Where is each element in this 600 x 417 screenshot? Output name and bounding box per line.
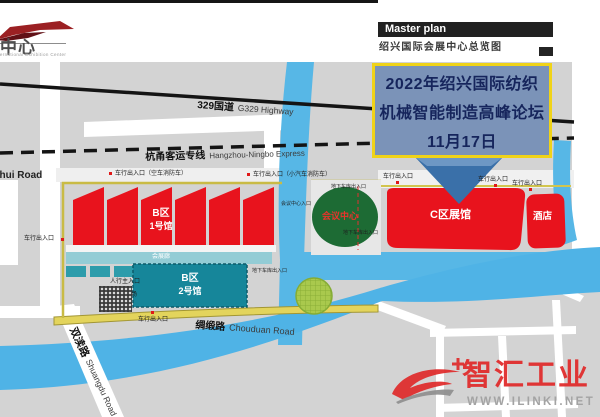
entrance-label: 地下车库出入口	[252, 269, 287, 275]
entrance-label: 车行出入口（空车消防车）	[115, 171, 187, 178]
master-plan-title: Master plan	[378, 22, 553, 37]
entrance-label: 车行出入口	[24, 236, 54, 243]
g329-en: G329 Highway	[238, 103, 294, 117]
entrance-label: 车行出入口	[512, 181, 542, 188]
hall-b1-line1: B区	[138, 207, 184, 220]
entrance-label: 地下车库出入口	[331, 185, 366, 191]
event-annotation-box: 2022年绍兴国际纺织 机械智能制造高峰论坛 11月17日	[372, 63, 552, 158]
hall-b1-label: B区 1号馆	[138, 207, 184, 233]
chouduan-en: Chouduan Road	[229, 322, 295, 337]
entrance-label: 车行出入口	[478, 177, 508, 184]
tuhui-road-label: Tuhui Road	[0, 170, 42, 181]
entrance-label: 人行主入口	[110, 279, 140, 286]
hall-b2-label: B区 2号馆	[167, 272, 213, 298]
logo-text-en: Shaoxing International Exhibition Center	[0, 52, 66, 57]
entrance-label: 车行出入口	[383, 174, 413, 181]
entrance-label: 车行出入口	[138, 317, 168, 324]
hotel-label: 酒店	[533, 212, 552, 222]
crop-mark	[539, 47, 553, 56]
corridor-label: 会展廊	[152, 254, 170, 261]
hall-b2-line1: B区	[167, 272, 213, 285]
watermark-logo-icon	[382, 352, 472, 410]
watermark-site: WWW.ILINKI.NET	[467, 396, 595, 408]
map-subtitle: 绍兴国际会展中心总览图	[379, 38, 502, 53]
entrance-label: 车行出入口（小汽车消防车）	[253, 172, 331, 179]
plaza-building-block	[99, 286, 132, 312]
conference-center-label: 会议中心	[322, 212, 358, 222]
express-en: Hangzhou-Ningbo Express	[209, 149, 305, 160]
watermark-brand: 智汇工业	[462, 361, 590, 391]
page-margin	[572, 62, 600, 252]
entrance-label: 会议中心入口	[281, 202, 311, 208]
entrance-label: 地下车库出入口	[343, 231, 378, 237]
corridor-tabs	[66, 266, 134, 277]
event-line3: 11月17日	[375, 128, 549, 157]
top-border-line	[0, 0, 378, 3]
g329-cn: 329国道	[197, 100, 234, 114]
event-line2: 机械智能制造高峰论坛	[375, 99, 549, 128]
chouduan-cn: 绸缎路	[195, 320, 226, 333]
express-cn: 杭甬客运专线	[145, 150, 205, 163]
event-line1: 2022年绍兴国际纺织	[375, 70, 549, 99]
hall-c-label: C区展馆	[430, 209, 471, 221]
hall-b1-line2: 1号馆	[138, 220, 184, 233]
hall-b2-line2: 2号馆	[167, 285, 213, 298]
master-plan-page: 会展中心 Shaoxing International Exhibition C…	[0, 0, 600, 417]
park-circle	[296, 278, 332, 314]
